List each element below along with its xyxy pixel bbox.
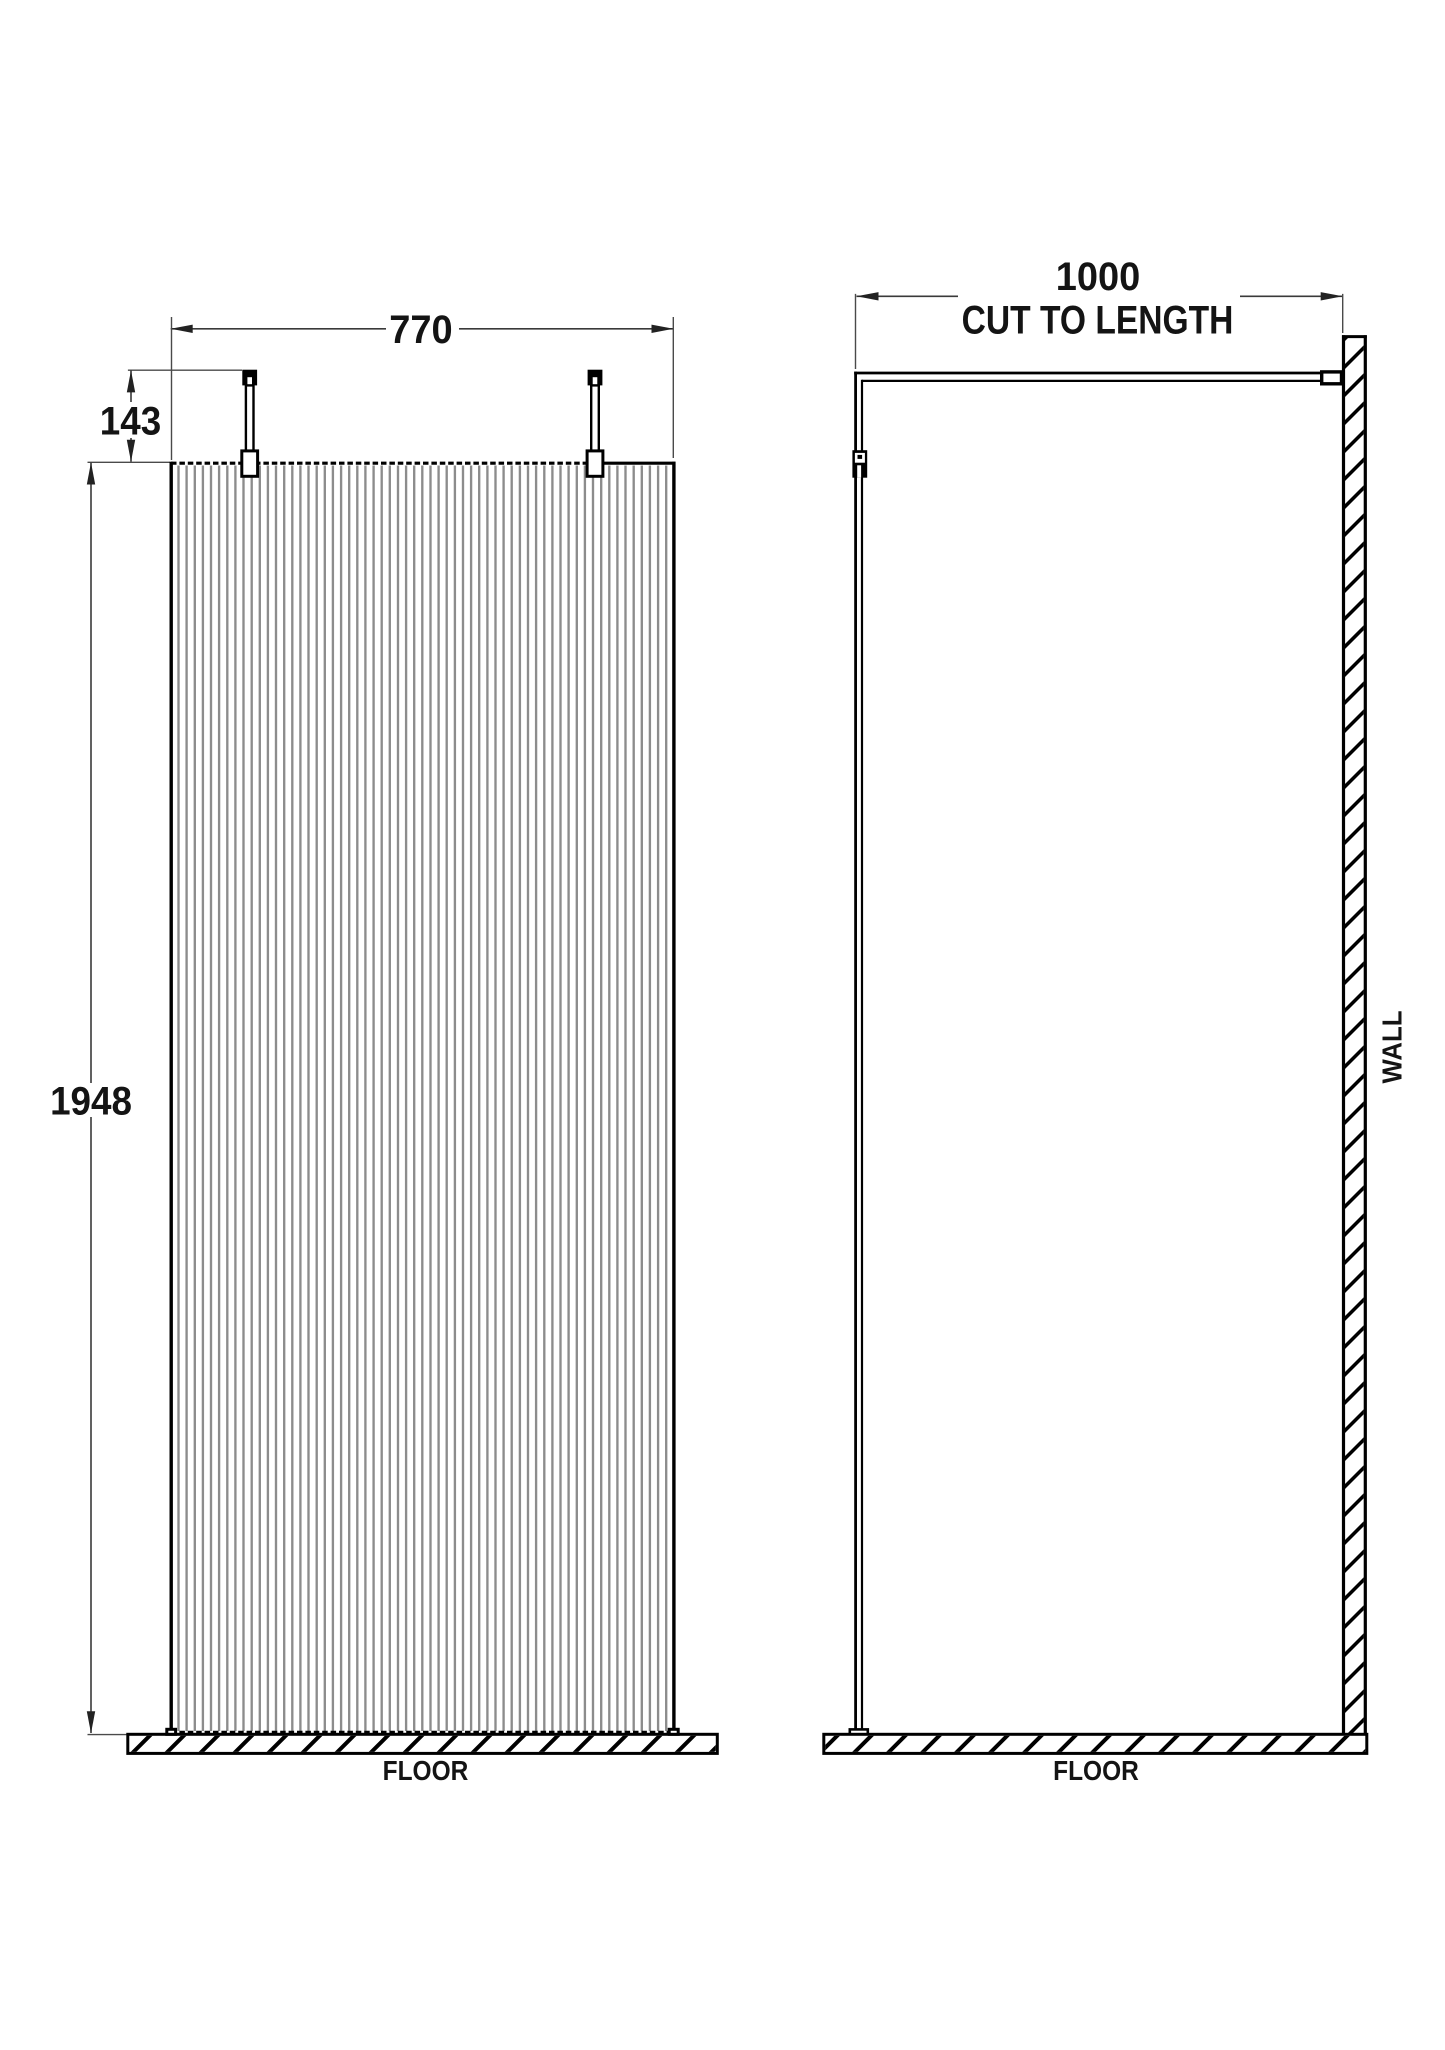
svg-text:FLOOR: FLOOR xyxy=(1053,1755,1139,1787)
svg-text:770: 770 xyxy=(389,308,452,352)
svg-text:CUT TO LENGTH: CUT TO LENGTH xyxy=(962,298,1234,342)
svg-text:FLOOR: FLOOR xyxy=(383,1755,469,1787)
svg-text:143: 143 xyxy=(100,399,161,444)
svg-text:1948: 1948 xyxy=(50,1079,132,1124)
svg-text:1000: 1000 xyxy=(1056,255,1141,299)
svg-text:WALL: WALL xyxy=(1377,1011,1408,1084)
